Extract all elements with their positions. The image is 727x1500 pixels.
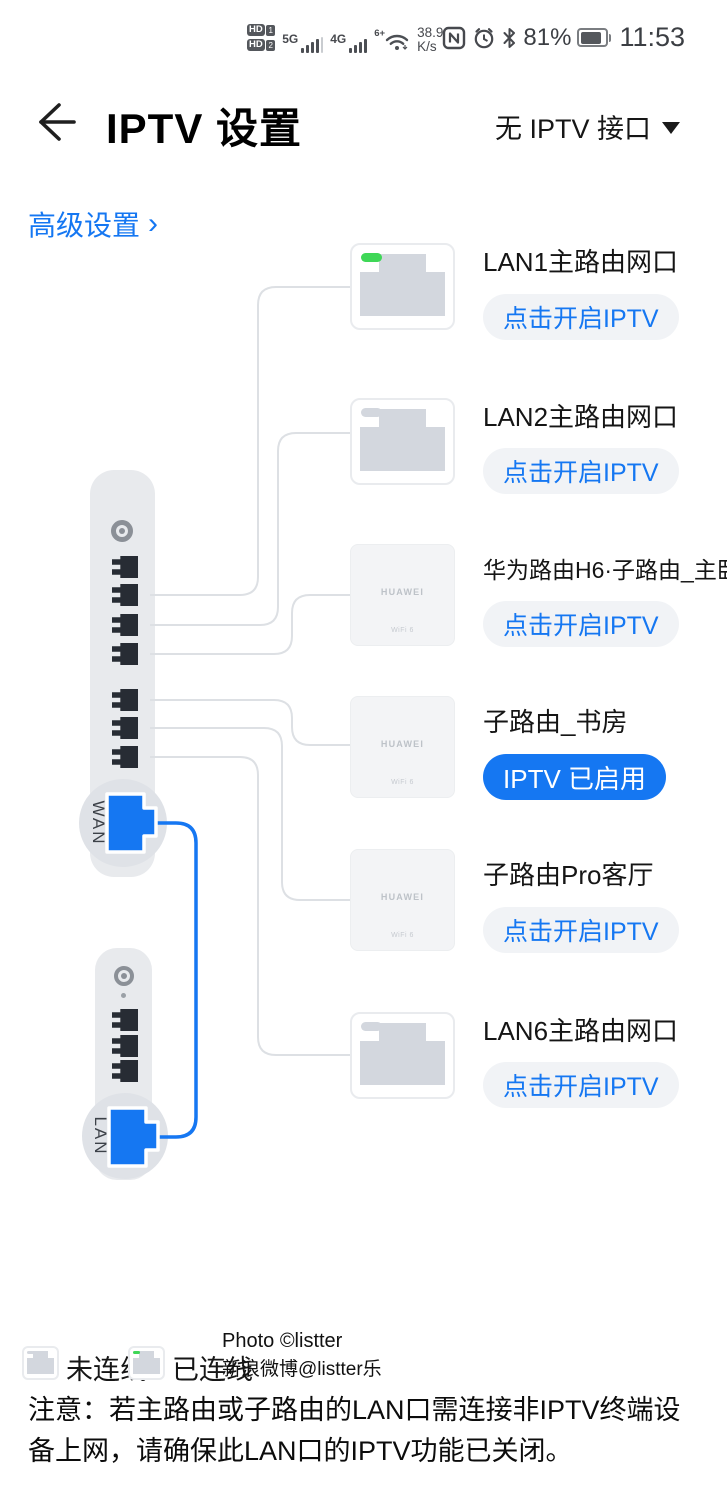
page-title: IPTV 设置: [106, 95, 302, 156]
legend-connected-icon: [128, 1346, 165, 1380]
device-label: 子路由_书房: [483, 702, 627, 739]
signal-bars-icon: [349, 39, 367, 53]
ethernet-port-icon: [350, 243, 455, 330]
bluetooth-icon: [502, 27, 517, 49]
alarm-icon: [472, 26, 496, 50]
modem-led-dot: [121, 993, 126, 998]
hd-label: HD: [247, 24, 265, 36]
huawei-router-icon: HUAWEI WiFi 6: [350, 849, 455, 951]
device-label: LAN1主路由网口: [483, 242, 678, 279]
advanced-settings-link[interactable]: 高级设置 ›: [28, 204, 158, 244]
battery-percent: 81%: [523, 24, 571, 52]
watermark-line1: Photo ©listter: [222, 1330, 342, 1353]
device-label: LAN2主路由网口: [483, 397, 678, 434]
wifi6-badge: WiFi 6: [351, 932, 454, 939]
coax-center-dot: [121, 973, 127, 979]
speed-value: 38.9: [417, 26, 443, 40]
wire-pro: [150, 728, 350, 900]
wire-study: [150, 700, 350, 745]
chevron-right-icon: ›: [148, 210, 158, 238]
coax-center-dot: [119, 528, 125, 534]
device-label: 华为路由H6·子路由_主卧: [483, 551, 727, 585]
enable-iptv-button[interactable]: 点击开启IPTV: [483, 1062, 679, 1108]
battery-icon: [577, 29, 611, 47]
disconnected-led: [361, 1022, 382, 1031]
iptv-settings-screen: HD 1 HD 2 5G 4G: [0, 0, 727, 1500]
device-label: LAN6主路由网口: [483, 1011, 678, 1048]
wire-lan6: [150, 757, 350, 1055]
status-left-cluster: HD 1 HD 2 5G 4G: [247, 24, 443, 53]
sim1-number: 1: [266, 25, 275, 36]
wan-lan-cable: [157, 823, 196, 1137]
iptv-port-selector[interactable]: 无 IPTV 接口: [495, 107, 680, 146]
wire-lan2: [150, 433, 350, 625]
lan-port-plug-icon: [106, 1105, 162, 1169]
back-arrow-icon: [33, 101, 77, 143]
enable-iptv-button[interactable]: 点击开启IPTV: [483, 294, 679, 340]
huawei-logo: HUAWEI: [351, 892, 454, 902]
ethernet-port-icon: [350, 1012, 455, 1099]
advanced-settings-label: 高级设置: [28, 204, 140, 244]
huawei-router-icon: HUAWEI WiFi 6: [350, 544, 455, 646]
network-type-label: 4G: [330, 32, 346, 46]
back-button[interactable]: [33, 101, 77, 143]
dropdown-caret-icon: [662, 122, 680, 134]
connected-led: [361, 253, 382, 262]
hd-sim2-icon: HD 2: [247, 39, 275, 51]
hd-label: HD: [247, 39, 265, 51]
nfc-icon: [442, 26, 466, 50]
hd-sim1-icon: HD 1: [247, 24, 275, 36]
wifi6-badge: WiFi 6: [351, 627, 454, 634]
sim2-number: 2: [266, 40, 275, 51]
huawei-router-icon: HUAWEI WiFi 6: [350, 696, 455, 798]
iptv-enabled-button[interactable]: IPTV 已启用: [483, 754, 666, 800]
enable-iptv-button[interactable]: 点击开启IPTV: [483, 907, 679, 953]
wire-h6: [150, 595, 350, 654]
wire-lan1: [150, 287, 350, 595]
network-type-label: 5G: [282, 32, 298, 46]
enable-iptv-button[interactable]: 点击开启IPTV: [483, 448, 679, 494]
signal-bars-icon: [301, 37, 323, 53]
disconnected-led: [361, 408, 382, 417]
wifi6-badge: WiFi 6: [351, 779, 454, 786]
signal-4g: 4G: [330, 32, 367, 53]
legend-not-connected-icon: [22, 1346, 59, 1380]
wifi-icon: 6+: [374, 30, 410, 52]
network-speed: 38.9 K/s: [417, 26, 443, 54]
iptv-note-text: 注意：若主路由或子路由的LAN口需连接非IPTV终端设备上网，请确保此LAN口的…: [28, 1390, 704, 1472]
enable-iptv-button[interactable]: 点击开启IPTV: [483, 601, 679, 647]
wan-port-plug-icon: [104, 791, 160, 855]
status-right-cluster: 81% 11:53: [442, 22, 685, 53]
volte-hd-badges: HD 1 HD 2: [247, 24, 275, 51]
signal-5g: 5G: [282, 32, 323, 53]
status-bar: HD 1 HD 2 5G 4G: [0, 18, 727, 68]
huawei-logo: HUAWEI: [351, 739, 454, 749]
device-label: 子路由Pro客厅: [483, 855, 653, 892]
clock-time: 11:53: [619, 22, 685, 53]
speed-unit: K/s: [417, 40, 443, 54]
watermark-line2: 新浪微博@listter乐: [222, 1354, 382, 1381]
huawei-logo: HUAWEI: [351, 587, 454, 597]
ethernet-port-icon: [350, 398, 455, 485]
iptv-port-selector-value: 无 IPTV 接口: [495, 107, 651, 146]
